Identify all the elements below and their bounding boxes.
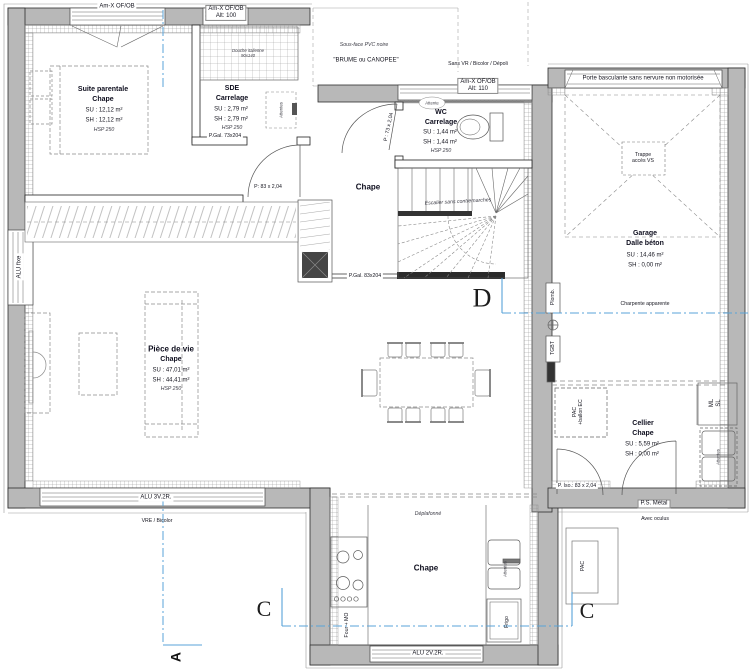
coffee-table (79, 333, 117, 395)
ml-sl-label: ML SL (709, 399, 723, 407)
room-floor: Carrelage (425, 119, 457, 127)
window-alt: Alt: 110 (460, 86, 495, 93)
wardrobe (25, 202, 298, 242)
room-sh: SH : 44,41 m² (152, 377, 189, 384)
room-floor: Carrelage (216, 95, 248, 103)
garage-door-label: Porte basculante sans nervure non motori… (580, 75, 705, 82)
section-letter-a: A (168, 652, 185, 662)
roof-outline (4, 4, 748, 668)
section-lines (163, 10, 748, 645)
room-su: SU : 12,12 m² (85, 107, 122, 114)
kitchen-floor-label: Chape (414, 563, 438, 572)
sl-line: SL (716, 399, 723, 407)
room-su: SU : 2,79 m² (214, 106, 248, 113)
brand-note: "BRUME ou CANOPEE" (333, 57, 398, 64)
trappe-line: accès VS (632, 158, 654, 164)
door-note-oculus: Avec oculus (641, 516, 669, 522)
door-label-ps-metal: P.S. Métal (638, 499, 671, 508)
window-label: Am-X OF/OB (97, 3, 136, 10)
section-letter-d: D (473, 284, 492, 315)
section-letter-c: C (257, 596, 272, 622)
attentes-label: Attentes (502, 561, 507, 577)
room-name-wc: WC (435, 109, 447, 117)
room-su: SU : 47,01 m² (152, 367, 189, 374)
trappe-label: Trappe accès VS (632, 152, 654, 164)
attentes-label: Attentes (715, 449, 720, 465)
pac-exterior-label: PAC (580, 561, 586, 571)
attente-label: Attente (425, 100, 439, 105)
soffit-note: Sous-face PVC noire (340, 42, 388, 48)
insulation-bands (25, 25, 728, 645)
pillow (30, 99, 52, 124)
door-label-hall: P.Gal. 83x204 (347, 273, 383, 279)
shower-label: Douche italienne 90x140 (232, 48, 264, 58)
pac-closet-label: PAC +ballon EC (572, 399, 584, 425)
window-label-alu-fixe: ALU fixe (16, 254, 23, 281)
charpente-note: Charpente apparente (620, 301, 669, 307)
room-su: SU : 14,46 m² (626, 252, 663, 259)
window-label-line: Am-X OF/OB (460, 79, 495, 86)
window-alt: Alt: 100 (208, 13, 243, 20)
corridor-closet (298, 200, 332, 282)
room-name-cellier: Cellier (632, 420, 653, 428)
room-name-sde: SDE (225, 85, 239, 93)
dining-chairs (362, 343, 490, 422)
pac-line: +ballon EC (578, 399, 584, 425)
room-sh: SH : 2,79 m² (214, 116, 248, 123)
window-label-alu3v: ALU 3V.2R. (138, 494, 173, 501)
room-hsp: HSP 250 (161, 386, 182, 392)
window-label-alu2v: ALU 2V.2R. (410, 650, 445, 657)
room-hsp: HSP 250 (222, 125, 243, 131)
room-name-garage: Garage (633, 230, 657, 238)
room-name-living: Pièce de vie (148, 344, 194, 353)
room-su: SU : 1,44 m² (423, 129, 457, 136)
ml-line: ML (709, 399, 716, 407)
pillow (30, 71, 52, 96)
room-sh: SH : 0,00 m² (625, 451, 659, 458)
four-label: Four + MO (344, 613, 350, 638)
door-label-sde: P.Gal. 73x204 (207, 133, 243, 139)
window-note: Sans VR / Bicolor / Dépoli (448, 61, 508, 67)
shower-line: 90x140 (232, 53, 264, 58)
door-label-suite: P: 83 x 2,04 (252, 184, 284, 190)
room-hsp: HSP 250 (94, 127, 115, 133)
windows (8, 8, 722, 662)
room-floor: Dalle béton (626, 240, 664, 248)
room-sh: SH : 1,44 m² (423, 139, 457, 146)
pac-outdoor-unit (566, 528, 618, 604)
section-letter-c: C (580, 598, 595, 624)
attentes-label: Attentes (278, 102, 283, 118)
window-label: Am-X OF/OB Alt: 100 (205, 5, 246, 21)
room-sh: SH : 0,00 m² (628, 262, 662, 269)
deplafonne-note: Déplafonné (415, 511, 442, 517)
tgbt-label: TGBT (550, 341, 556, 355)
garage-ceiling (565, 95, 720, 237)
ceiling-edge (332, 494, 538, 497)
dining-table (380, 358, 473, 407)
room-hsp: HSP 250 (431, 148, 452, 154)
sofa (145, 292, 198, 437)
room-name-suite: Suite parentale (78, 86, 128, 94)
window-label: Am-X OF/OB Alt: 110 (457, 78, 498, 94)
window-note-vre: VRE / Bicolor (142, 518, 173, 524)
hall-floor-label: Chape (356, 182, 380, 191)
window-label-line: Am-X OF/OB (208, 6, 243, 13)
room-su: SU : 5,59 m² (625, 441, 659, 448)
door-label-iso: P. Iso.: 83 x 2,04 (556, 483, 598, 489)
room-floor: Chape (160, 356, 181, 364)
meter-strip (547, 362, 555, 382)
plomb-label: Plomb. (550, 289, 556, 305)
room-sh: SH : 12,12 m² (85, 117, 122, 124)
room-floor: Chape (632, 430, 653, 438)
floor-plan: Am-X OF/OB Am-X OF/OB Alt: 100 Am-X OF/O… (0, 0, 751, 669)
frigo-label: Frigo (504, 616, 510, 628)
service-door (622, 441, 676, 495)
stairs (398, 168, 528, 278)
room-floor: Chape (92, 96, 113, 104)
